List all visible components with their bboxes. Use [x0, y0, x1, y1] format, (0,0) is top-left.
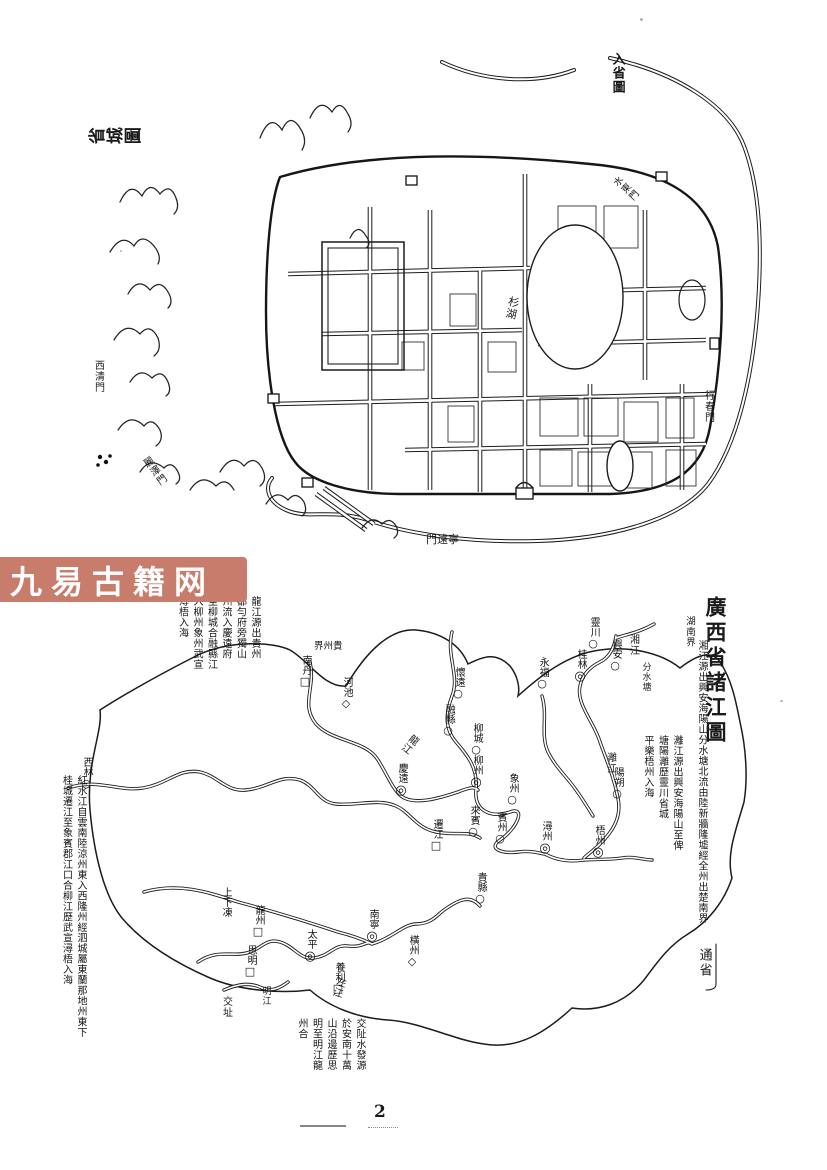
town-symbol: ○: [453, 688, 463, 699]
town-name: 象州: [507, 773, 517, 793]
annotation-column: 紅水江自雲南陸涼州東入西隆州經泗城屬東蘭那地州東下: [74, 775, 87, 1067]
watermark-band: 九易古籍网: [0, 557, 247, 602]
annotation-column: 龍江源出貴州: [248, 596, 261, 746]
label-fenshuitang: 分水塘: [640, 662, 649, 692]
annotation-column: 於安南十萬: [338, 1018, 351, 1102]
town-name: 梧州: [593, 825, 603, 845]
town-marker: 橫州◇: [407, 935, 417, 967]
river-map-title: 廣西省諸江圖: [704, 596, 726, 786]
town-symbol: ○: [443, 725, 453, 736]
town-symbol: ○: [537, 678, 547, 689]
gate-xiqing: 西清門: [92, 360, 103, 393]
town-symbol: ◎: [539, 842, 550, 855]
town-name: 融縣: [443, 704, 453, 724]
town-name: 河池: [341, 677, 351, 697]
town-name: 養利: [333, 962, 343, 982]
volume-label: 通省: [697, 948, 711, 978]
town-name: 靈川: [588, 617, 598, 637]
town-marker: 懷遠○: [453, 667, 463, 699]
town-marker: 遷江□: [431, 819, 441, 851]
annotation-column: 明至明江龍: [309, 1018, 322, 1102]
town-symbol: ○: [495, 833, 505, 844]
gate-ningyuan: 門遠寧: [426, 534, 459, 546]
town-symbol: □: [431, 840, 441, 851]
page-number: 2: [374, 1102, 386, 1122]
town-symbol: ○: [471, 744, 481, 755]
town-symbol: ○: [507, 794, 517, 805]
corner-label: 入省圖: [610, 52, 624, 94]
river-network: [68, 624, 654, 990]
town-marker: 興安○: [610, 639, 620, 671]
town-marker: 象州○: [507, 773, 517, 805]
town-name: 橫州: [407, 935, 417, 955]
town-symbol: ◇: [407, 956, 417, 967]
town-name: 南丹: [300, 655, 310, 675]
town-marker: 桂林◎: [574, 649, 585, 683]
shanhu-lake: [527, 225, 623, 369]
town-symbol: □: [333, 983, 343, 994]
border-guizhou: 界州貴: [314, 642, 343, 652]
town-name: 潯州: [540, 821, 550, 841]
town-marker: 慶遠◎: [395, 763, 406, 797]
town-marker: 來賓○: [468, 805, 478, 837]
city-map-linework: [70, 42, 790, 572]
town-name: 柳州: [471, 755, 481, 775]
watermark-text: 九易古籍网: [0, 557, 215, 603]
scan-speck: [640, 18, 643, 21]
town-symbol: □: [300, 676, 310, 687]
town-name: 興安: [610, 639, 620, 659]
annotation-column: 入柳州象州武宣: [190, 596, 203, 746]
map-annotation: 灕江源出興安海陽山至俾塘陽灕歷靈川省城平樂梧州入海: [638, 735, 682, 875]
city-map-title: 省城圖: [88, 130, 142, 148]
town-symbol: ○: [588, 638, 598, 649]
town-marker: 賓州○: [495, 812, 505, 844]
palace-compound: [322, 229, 404, 370]
town-name: 永福: [537, 657, 547, 677]
town-name: 西林: [81, 757, 91, 777]
town-symbol: ◎: [395, 784, 406, 797]
town-name: 柳城: [471, 723, 481, 743]
town-marker: 柳城○: [471, 723, 481, 755]
town-marker: 柳州◎: [470, 755, 481, 789]
town-symbol: ○: [610, 660, 620, 671]
town-symbol: ○: [468, 826, 478, 837]
town-symbol: ◎: [574, 670, 585, 683]
town-name: 南寧: [367, 909, 377, 929]
street-grid: [275, 174, 715, 530]
town-symbol: □: [245, 966, 255, 977]
town-symbol: ◎: [366, 930, 377, 943]
town-marker: 永福○: [537, 657, 547, 689]
town-marker: 上下凍: [220, 887, 230, 918]
gate-xingchun: 行春門: [702, 390, 713, 423]
town-marker: 潯州◎: [539, 821, 550, 855]
town-name: 遷江: [431, 819, 441, 839]
small-pond: [607, 441, 633, 491]
map-annotation: 交阯水發源於安南十萬山沿邊歷思明至明江龍州合: [295, 1018, 365, 1102]
town-symbol: □: [253, 926, 263, 937]
town-marker: 養利□: [333, 962, 343, 994]
town-symbol: ◇: [341, 698, 351, 709]
town-symbol: ◎: [592, 846, 603, 859]
town-symbol: ◎: [304, 950, 315, 963]
annotation-column: 州合: [295, 1018, 308, 1102]
scan-speck: [780, 700, 783, 702]
river-mingjiang: 明江: [260, 986, 269, 1006]
city-map: 省城圖入省圖西清門麗澤門門遠寧行春門水東門杉湖: [70, 42, 790, 572]
town-symbol: ○: [612, 788, 622, 799]
town-name: 龍州: [253, 905, 263, 925]
annotation-column: 灕江源出興安海陽山至俾: [670, 735, 683, 875]
annotation-column: 桂城遷江至象賓郡江口合柳江歷武宣潯梧入海: [59, 775, 72, 1067]
scanned-atlas-page: { "page": { "number": "2", "watermark": …: [0, 0, 827, 1170]
town-name: 貴縣: [475, 872, 485, 892]
town-marker: 南寧◎: [366, 909, 377, 943]
map-annotation: 龍江源出貴州都勻府旁獨山州流入慶遠府至柳城合融縣江入柳州象州武宣潯梧入海: [176, 596, 260, 746]
town-marker: 龍州□: [253, 905, 263, 937]
annotation-column: 州流入慶遠府: [219, 596, 232, 746]
town-name: 陽朔: [612, 767, 622, 787]
annotation-column: 至柳城合融縣江: [204, 596, 217, 746]
province-rivers-map: 湖南界界州貴交址龍江湘江分水塘灕江左江明江西林○南丹□河池◇慶遠◎懷遠○融縣○柳…: [48, 592, 788, 1112]
map-annotation: 紅水江自雲南陸涼州東入西隆州經泗城屬東蘭那地州東下桂城遷江至象賓郡江口合柳江歷武…: [56, 775, 86, 1067]
town-name: 慶遠: [396, 763, 406, 783]
annotation-column: 平樂梧州入海: [641, 735, 654, 875]
town-name: 賓州: [495, 812, 505, 832]
town-marker: 南丹□: [300, 655, 310, 687]
town-name: 上下凍: [220, 887, 230, 917]
town-marker: 河池◇: [341, 677, 351, 709]
town-marker: 陽朔○: [612, 767, 622, 799]
town-name: 來賓: [468, 805, 478, 825]
town-symbol: ◎: [470, 776, 481, 789]
town-name: 桂林: [575, 649, 585, 669]
annotation-column: 潯梧入海: [175, 596, 188, 746]
annotation-column: 交阯水發源: [353, 1018, 366, 1102]
town-marker: 融縣○: [443, 704, 453, 736]
town-marker: 思明□: [245, 945, 255, 977]
annotation-column: 山沿邊歷思: [324, 1018, 337, 1102]
annotation-column: 塘陽灕歷靈川省城: [655, 735, 668, 875]
river-xiangjiang: 湘江: [627, 634, 638, 656]
town-name: 懷遠: [453, 667, 463, 687]
town-marker: 靈川○: [588, 617, 598, 649]
town-name: 太平: [305, 929, 315, 949]
scan-dash-artifact: [300, 1125, 346, 1127]
town-marker: 太平◎: [304, 929, 315, 963]
town-marker: 梧州◎: [592, 825, 603, 859]
border-jiaozhi: 交址: [220, 996, 231, 1018]
town-symbol: ○: [475, 893, 485, 904]
annotation-column: 都勻府旁獨山: [233, 596, 246, 746]
scan-speck: [120, 250, 122, 252]
town-name: 思明: [245, 945, 255, 965]
town-marker: 貴縣○: [475, 872, 485, 904]
page-number-rule: [368, 1127, 398, 1128]
